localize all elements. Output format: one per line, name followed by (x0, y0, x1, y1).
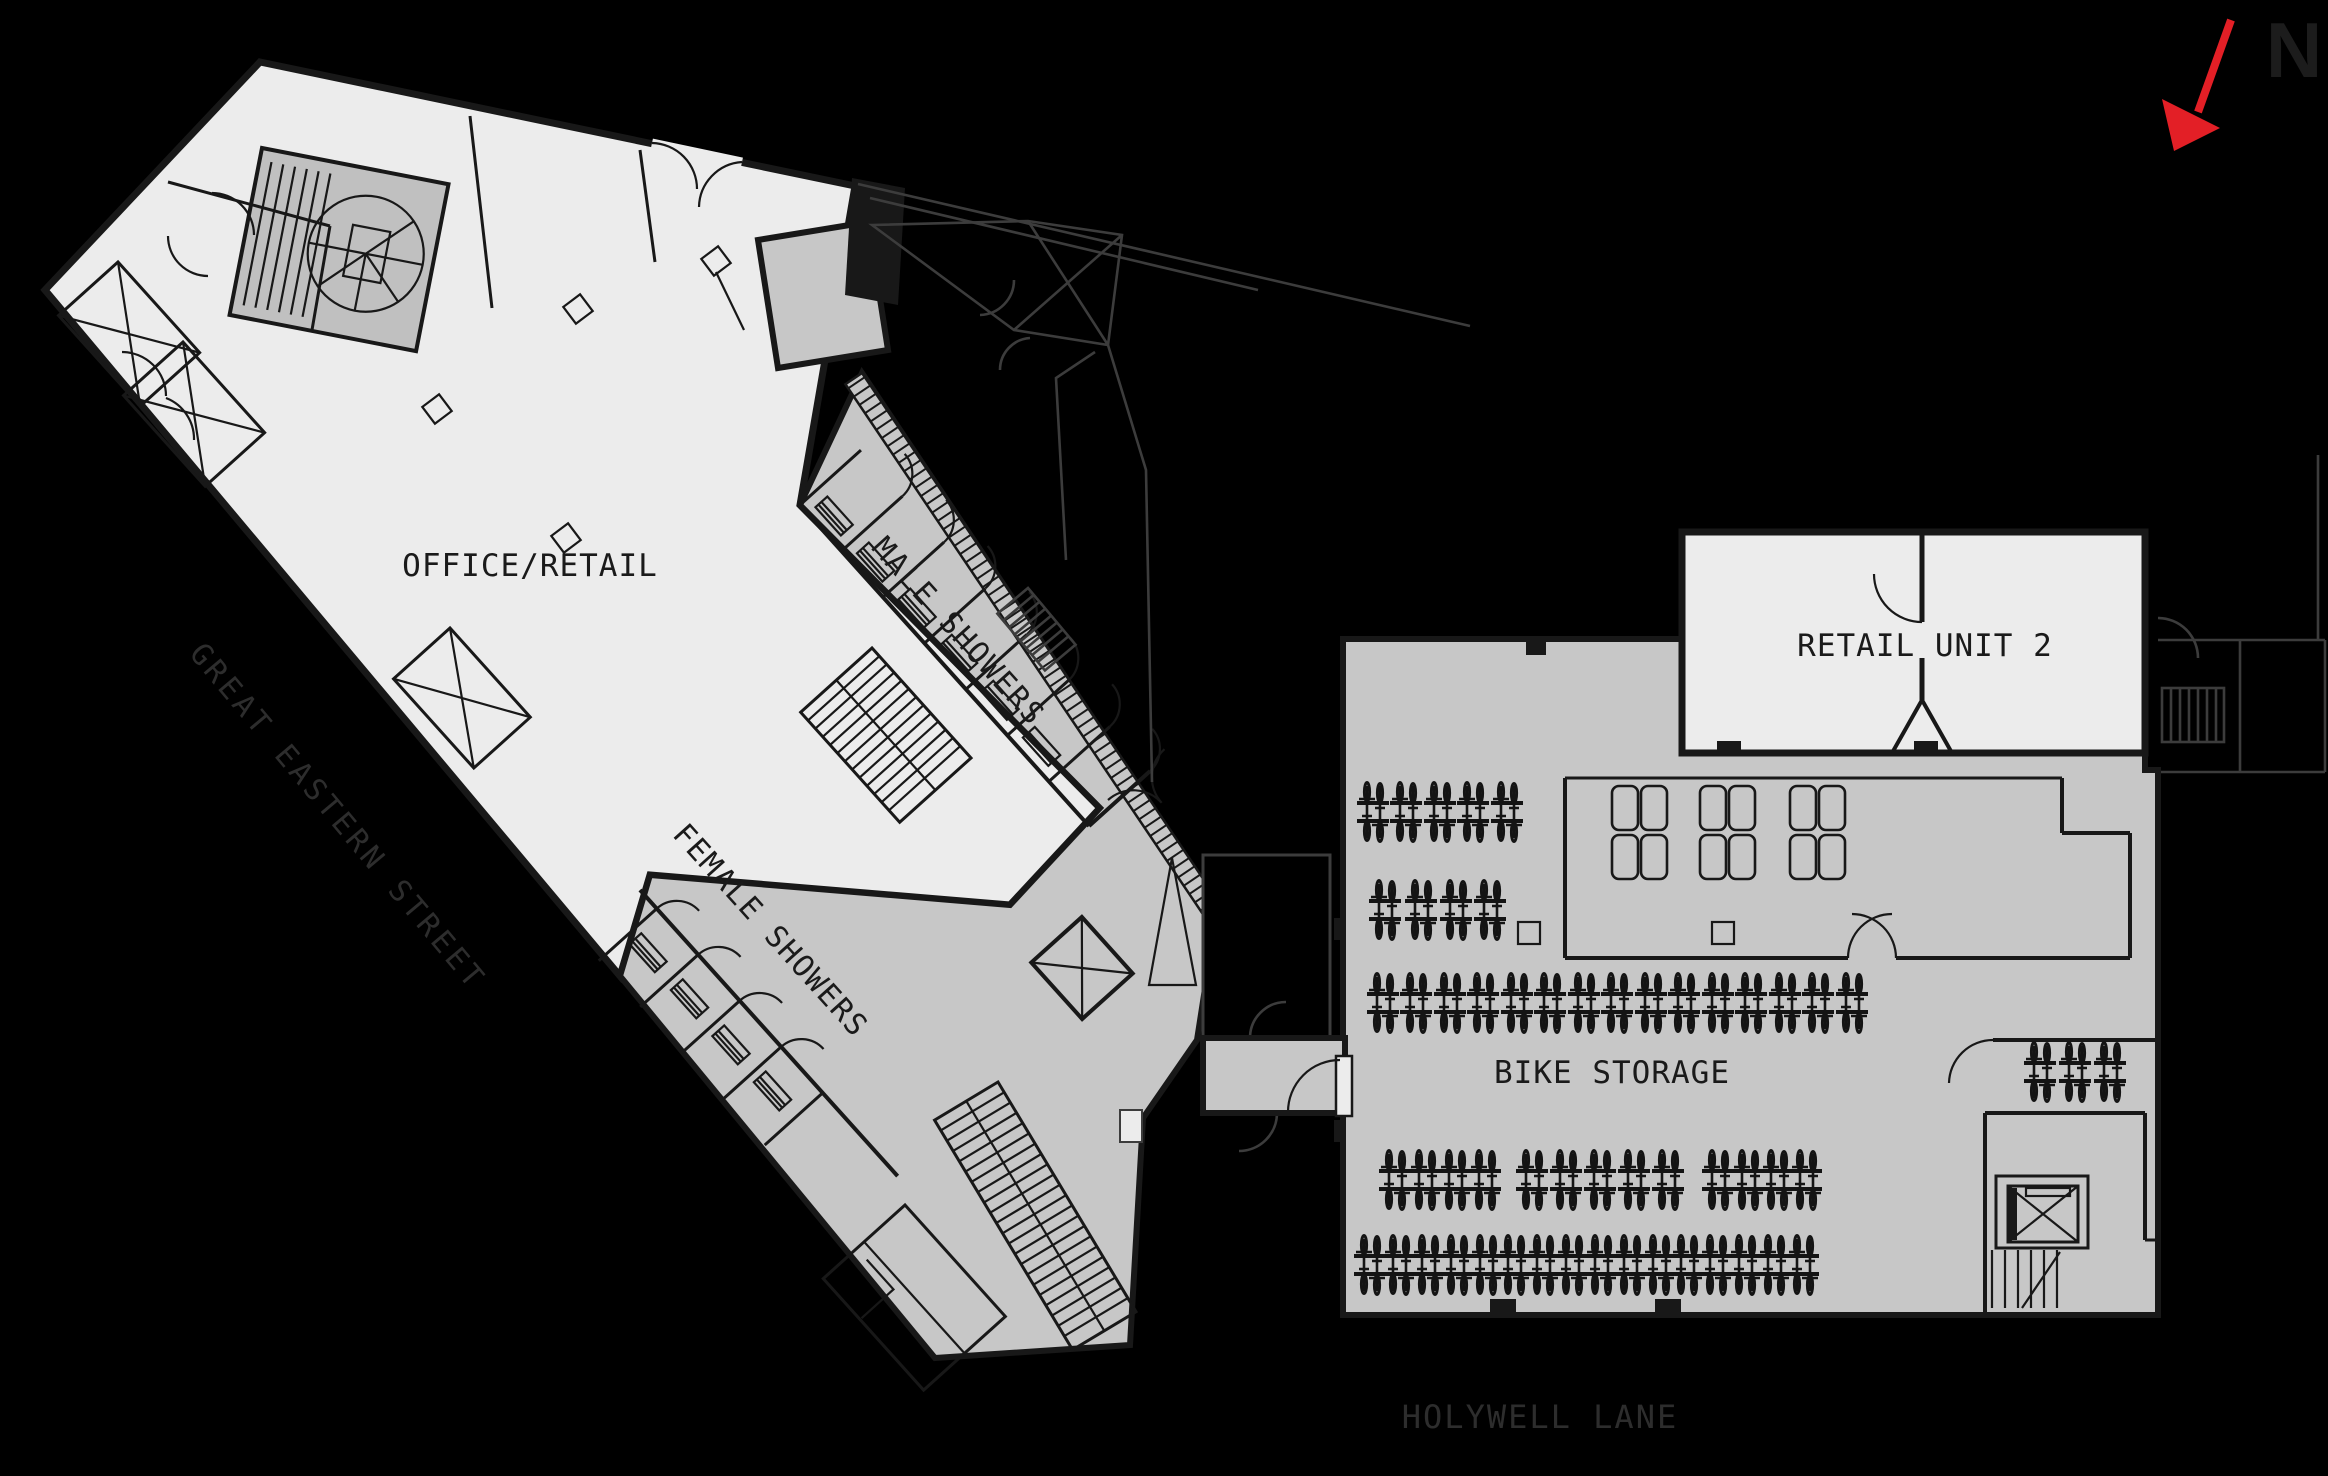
office-retail-label: OFFICE/RETAIL (402, 548, 658, 584)
context-stair-right (2162, 688, 2224, 742)
wall-stub (1120, 1110, 1142, 1142)
floor-plan-canvas: OFFICE/RETAIL MALE SHOWERS FEMALE SHOWER… (0, 0, 2328, 1476)
walkway (1203, 1038, 1345, 1113)
bike-store-door (1336, 1056, 1352, 1116)
bike-storage-label: BIKE STORAGE (1494, 1055, 1730, 1091)
left-building (45, 62, 1223, 1390)
north-arrow-shaft (2198, 20, 2231, 112)
north-letter: N (2266, 6, 2322, 94)
floor-plan-svg: OFFICE/RETAIL MALE SHOWERS FEMALE SHOWER… (0, 0, 2328, 1476)
north-arrow-head (2162, 99, 2220, 151)
stair-core (230, 148, 449, 351)
holywell-lane-label: HOLYWELL LANE (1402, 1398, 1678, 1436)
retail-unit-2-label: RETAIL UNIT 2 (1797, 628, 2053, 664)
north-arrow: N (2162, 6, 2322, 151)
service-room (1203, 855, 1330, 1038)
